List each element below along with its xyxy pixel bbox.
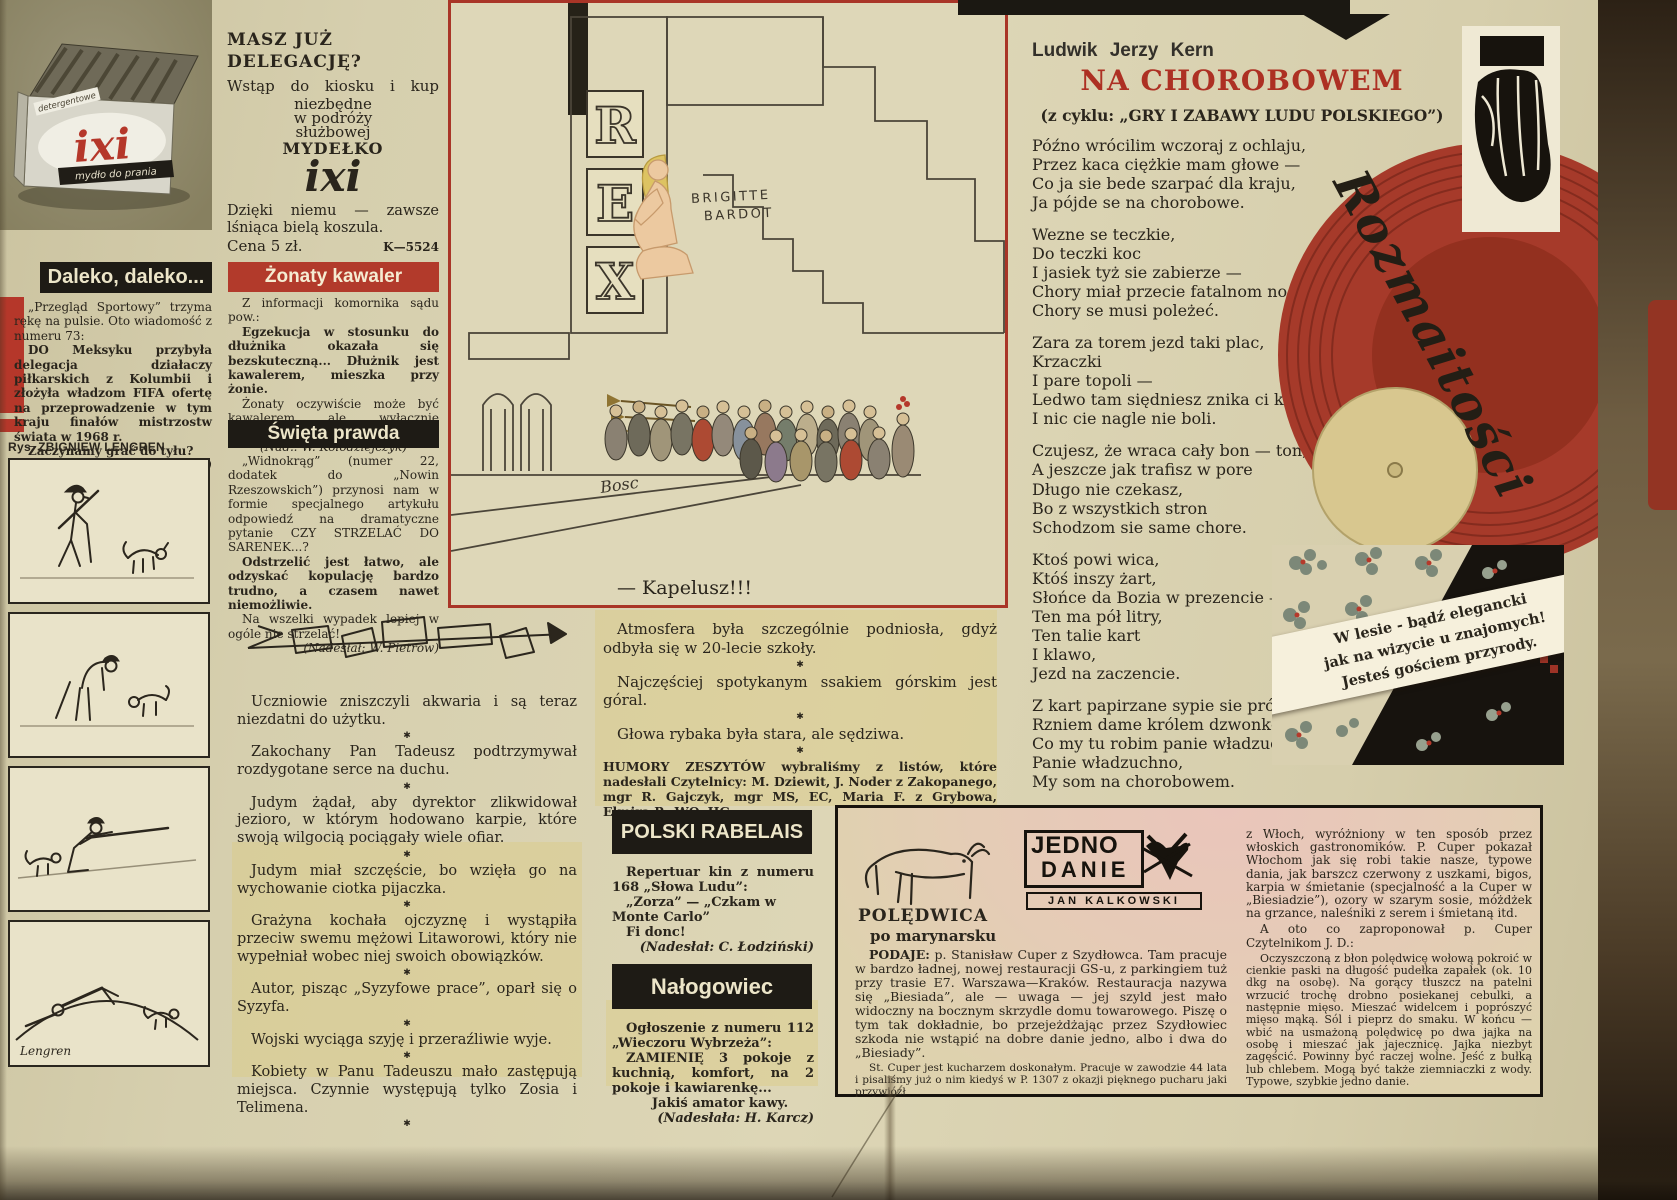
jokes-left-column: Uczniowie zniszczyli akwaria i są teraz …	[237, 694, 577, 1132]
star-separator-icon: ✱	[237, 967, 577, 979]
recipe-title: POLĘDWICA	[858, 906, 988, 926]
recipe-p1-text: p. Stanisław Cuper z Szydłowca. Tam prac…	[855, 947, 1227, 1060]
section-title-zonaty: Żonaty kawaler	[228, 262, 439, 292]
nalogowiec-credit: (Nadesłała: H. Karcz)	[612, 1112, 814, 1127]
nalogowiec-p1: Ogłoszenie z numeru 112 „Wieczoru Wybrze…	[612, 1022, 814, 1052]
star-separator-icon: ✱	[603, 659, 997, 671]
zonaty-p2: Egzekucja w stosunku do dłużnika okazała…	[228, 325, 439, 397]
recipe-p3: z Włoch, wyróżniony w ten sposób przez w…	[1246, 828, 1532, 920]
rex-cinema-cartoon: R E X BRIGITTE BARDOT	[451, 3, 1005, 605]
comic-panel-1	[8, 458, 210, 604]
ad-brand: ixi	[227, 152, 439, 201]
swieta-p1: „Widnokrąg” (numer 22, dodatek do „Nowin…	[228, 454, 439, 555]
joke: Atmosfera była szczególnie podniosła, gd…	[603, 620, 997, 658]
daleko-p2: DO Meksyku przybyła delegacja działaczy …	[14, 343, 212, 444]
zonaty-p1: Z informacji komornika sądu pow.:	[228, 296, 439, 325]
star-separator-icon: ✱	[237, 1050, 577, 1062]
cartoon-caption: — Kapelusz!!!	[617, 577, 857, 599]
rabelais-p1: Repertuar kin z numeru 168 „Słowa Ludu”:	[612, 866, 814, 896]
star-separator-icon: ✱	[237, 1018, 577, 1030]
comic-panel-3	[8, 766, 210, 912]
fold-mark-line	[820, 1085, 920, 1200]
star-separator-icon: ✱	[603, 711, 997, 723]
bull-head-icon	[1140, 832, 1194, 890]
swieta-p2: Odstrzelić jest łatwo, ale odzyskać kopu…	[228, 555, 439, 613]
rex-letter-x: X	[596, 252, 635, 311]
floral-pattern-box: W lesie - bądź elegancki jak na wizycie …	[1272, 545, 1564, 765]
rex-letter-r: R	[594, 96, 636, 155]
poem-subtitle: (z cyklu: „GRY I ZABAWY LUDU POLSKIEGO”)	[1022, 106, 1462, 125]
joke: Wojski wyciąga szyję i przeraźliwie wyje…	[237, 1032, 577, 1050]
recipe-p1: PODAJE: p. Stanisław Cuper z Szydłowca. …	[855, 948, 1227, 1060]
star-separator-icon: ✱	[237, 730, 577, 742]
page-edge-left	[0, 0, 7, 1200]
jedno-danie-logo-frame: JEDNO DANIE	[1024, 830, 1144, 888]
comic-panel-4: Lengren	[8, 920, 210, 1067]
rabelais-p3: Fi donc!	[612, 926, 814, 941]
rex-sign: R E X	[587, 91, 643, 313]
section-title-swieta: Święta prawda	[228, 420, 439, 448]
joke: Najczęściej spotykanym ssakiem górskim j…	[603, 673, 997, 711]
ixi-soap-box-illustration: detergentowe ixi mydło do prania	[0, 0, 212, 230]
poem-title: NA CHOROBOWEM	[1032, 64, 1452, 97]
recipe-p5: Oczyszczoną z błon polędwicę wołową pokr…	[1246, 953, 1532, 1088]
ad-line-3: Wstąp do kiosku i kup	[227, 77, 439, 95]
section-title-daleko: Daleko, daleko...	[40, 262, 212, 293]
top-rule-bar	[958, 0, 1350, 15]
section-title-rabelais: POLSKI RABELAIS	[612, 810, 812, 854]
joke: Judym miał szczęście, bo wzięła go na wy…	[237, 863, 577, 898]
lengren-credit: Rys. ZBIGNIEW LENGREN	[8, 440, 212, 454]
recipe-left-column: PODAJE: p. Stanisław Cuper z Szydłowca. …	[855, 948, 1227, 1098]
ad-code: K—5524	[383, 240, 439, 254]
joke: Kobiety w Panu Tadeuszu mało zastępują m…	[237, 1064, 577, 1117]
poem-author: Ludwik Jerzy Kern	[1032, 40, 1214, 62]
bardot-sign-line1: BRIGITTE	[691, 188, 771, 207]
ixi-soap-photo: detergentowe ixi mydło do prania	[0, 0, 212, 230]
rex-letter-e: E	[596, 174, 634, 233]
recipe-lead: PODAJE:	[869, 947, 930, 962]
nalogowiec-body: Ogłoszenie z numeru 112 „Wieczoru Wybrze…	[612, 1022, 814, 1127]
logo-word-danie: DANIE	[1041, 858, 1137, 882]
recipe-subtitle: po marynarsku	[870, 927, 996, 945]
ad-line-2: DELEGACJĘ?	[227, 52, 439, 72]
joke: Zakochany Pan Tadeusz podtrzymywał rozdy…	[237, 744, 577, 779]
joke: Judym żądał, aby dyrektor zlikwidował je…	[237, 795, 577, 848]
comic-panel-2	[8, 612, 210, 758]
joke: Grażyna kochała ojczyznę i wystąpiła prz…	[237, 913, 577, 966]
humory-lead: HUMORY ZESZYTÓW	[603, 759, 765, 774]
recipe-right-column: z Włoch, wyróżniony w ten sposób przez w…	[1246, 828, 1532, 1088]
magazine-page: detergentowe ixi mydło do prania Daleko,…	[0, 0, 1677, 1200]
rabelais-p2: „Zorza” — „Czkam w Monte Carlo”	[612, 896, 814, 926]
nalogowiec-p3: Jakiś amator kawy.	[612, 1097, 814, 1112]
recipe-p4: A oto co zaproponował p. Cuper Czytelnik…	[1246, 923, 1532, 949]
hunter-on-hill-illustration: Lengren	[10, 922, 204, 1061]
logo-word-jedno: JEDNO	[1031, 834, 1137, 858]
star-separator-icon: ✱	[603, 745, 997, 757]
joke: Uczniowie zniszczyli akwaria i są teraz …	[237, 694, 577, 729]
jedno-danie-logo: JEDNO DANIE JAN KALKOWSKI	[1024, 830, 1196, 922]
woman-figure	[634, 155, 693, 279]
star-separator-icon: ✱	[237, 899, 577, 911]
star-separator-icon: ✱	[237, 849, 577, 861]
joke: Autor, pisząc „Syzyfowe prace”, oparł si…	[237, 981, 577, 1016]
ad-tagline: Dzięki niemu — zawsze lśniąca bielą kosz…	[227, 203, 439, 236]
lengren-signature: Lengren	[19, 1044, 71, 1058]
star-separator-icon: ✱	[237, 781, 577, 793]
squiggle-doodle	[242, 606, 572, 676]
nalogowiec-p2: ZAMIENIĘ 3 pokoje z kuchnią, komfort, na…	[612, 1052, 814, 1097]
top-corner-wedge	[1302, 14, 1390, 40]
section-title-nalogowiec: Nałogowiec	[612, 964, 812, 1009]
hand-photo	[1462, 26, 1560, 232]
ad-line-1: MASZ JUŻ	[227, 30, 439, 50]
abstract-boxes-doodle	[242, 606, 572, 676]
star-separator-icon: ✱	[237, 1118, 577, 1130]
jokes-right-column: Atmosfera była szczególnie podniosła, gd…	[603, 620, 997, 834]
primitive-cow-drawing	[856, 832, 1006, 906]
ad-price-row: Cena 5 zł. K—5524	[227, 237, 439, 255]
hunter-walking-illustration	[10, 460, 204, 598]
recipe-box: JEDNO DANIE JAN KALKOWSKI POLĘDWICA po m…	[835, 805, 1543, 1097]
rabelais-body: Repertuar kin z numeru 168 „Słowa Ludu”:…	[612, 866, 814, 956]
page-edge-right	[1598, 0, 1677, 1200]
ad-price: Cena 5 zł.	[227, 237, 303, 255]
hunter-kneeling-illustration	[10, 768, 204, 906]
logo-author: JAN KALKOWSKI	[1026, 892, 1202, 910]
hand-illustration	[1462, 26, 1560, 232]
rabelais-credit: (Nadesłał: C. Łodziński)	[612, 941, 814, 956]
joke: Głowa rybaka była stara, ale sędziwa.	[603, 725, 997, 744]
daleko-p1: „Przegląd Sportowy” trzyma rękę na pulsi…	[14, 300, 212, 343]
cartoon-frame: R E X BRIGITTE BARDOT	[448, 0, 1008, 608]
page-edge-red-bleed	[1648, 300, 1677, 510]
hunter-bending-illustration	[10, 614, 204, 752]
crowd	[605, 396, 914, 482]
